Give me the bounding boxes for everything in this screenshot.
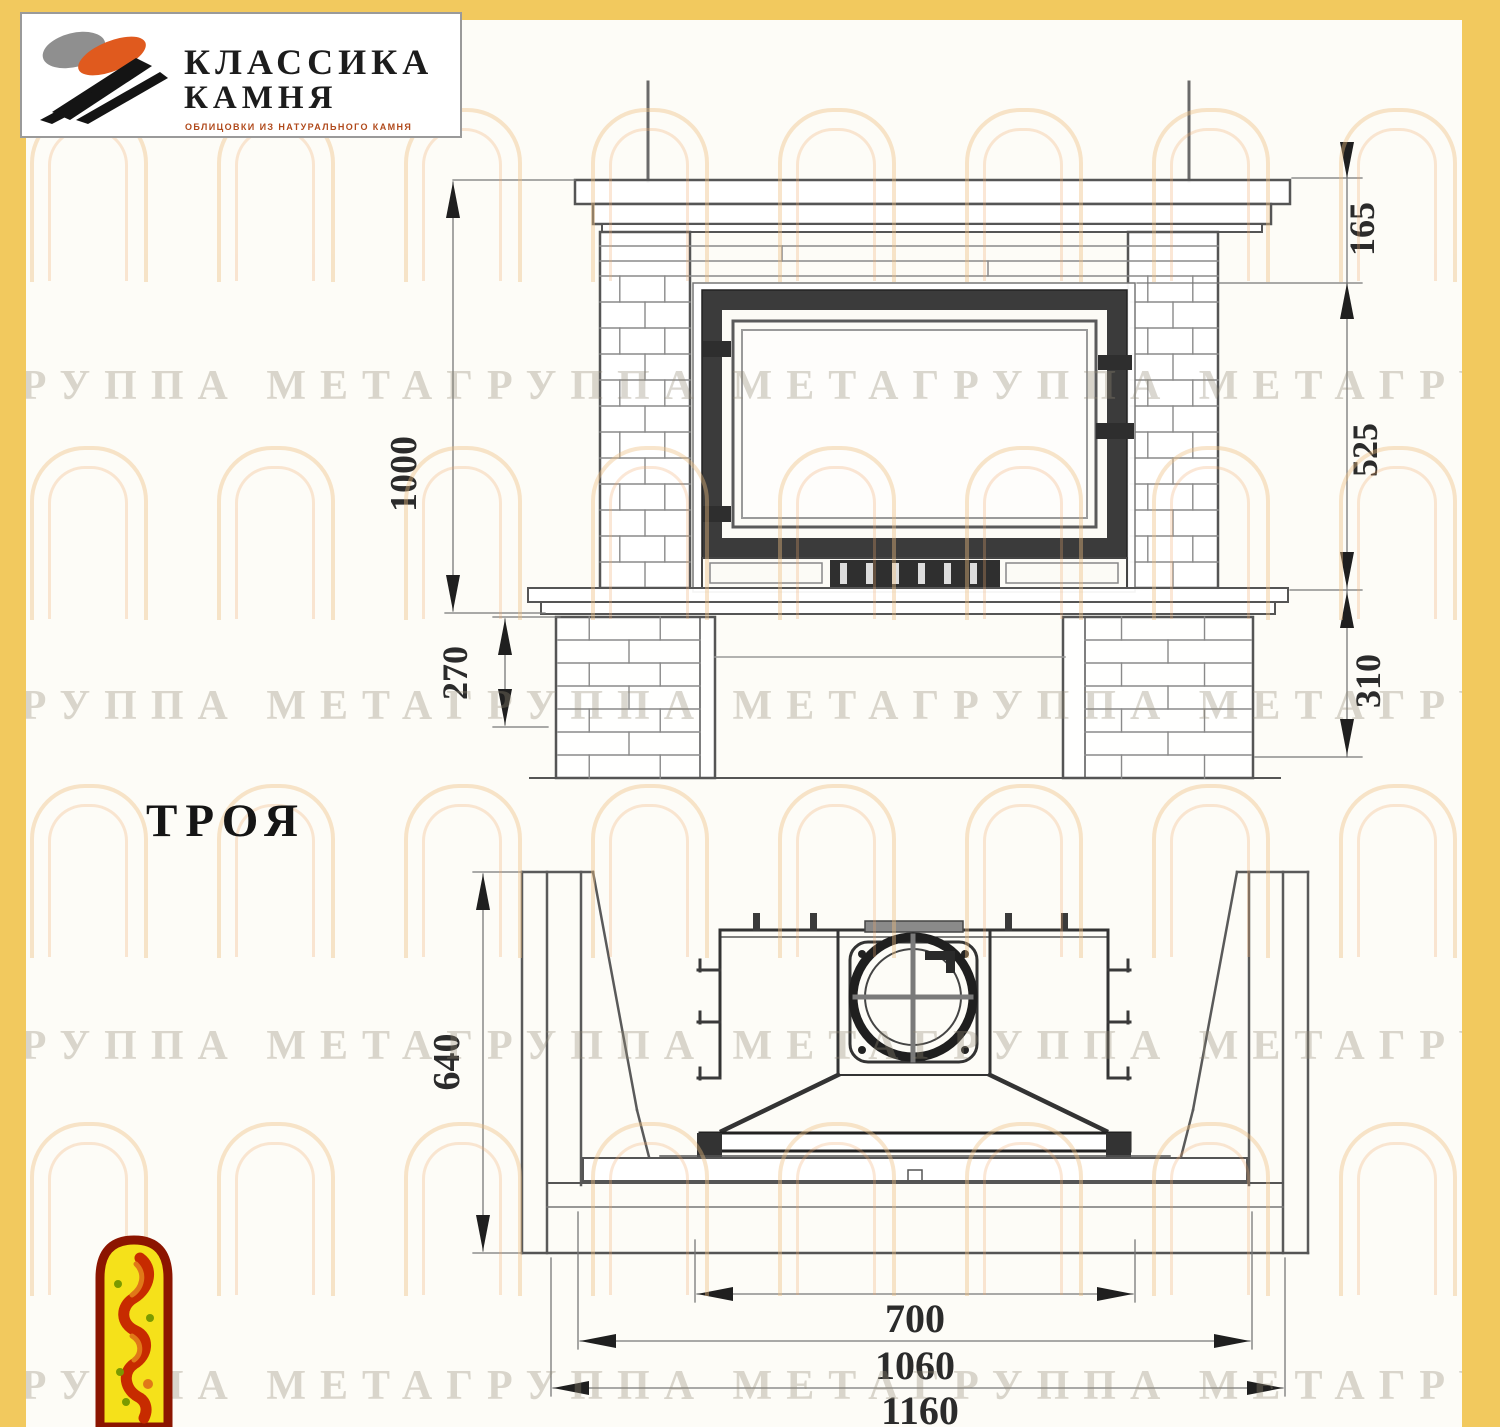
dimension-arrow-icon xyxy=(498,619,512,655)
page-frame-left xyxy=(0,0,26,1427)
dimension-arrow-icon xyxy=(1097,1287,1133,1301)
flue-outlet xyxy=(850,936,977,1062)
brand-name-line2: КАМНЯ xyxy=(184,82,337,115)
dimension-arrow-icon xyxy=(476,1215,490,1251)
dim-mantel-to-opening: 165 xyxy=(1342,202,1382,256)
dimension-arrow-icon xyxy=(1340,719,1354,755)
dimension-arrow-icon xyxy=(1340,283,1354,319)
catalog-page: { "brand": { "name_line1": "КЛАССИКА", "… xyxy=(0,0,1500,1427)
brand-name-line1: КЛАССИКА xyxy=(184,44,433,80)
dimension-arrow-icon xyxy=(498,689,512,725)
hinge-icon xyxy=(703,506,731,522)
front-view xyxy=(445,82,1362,778)
handle-icon xyxy=(1098,355,1132,370)
dimension-arrow-icon xyxy=(446,182,460,218)
dimension-arrow-icon xyxy=(580,1334,616,1348)
dimension-arrow-icon xyxy=(1340,552,1354,588)
dimension-arrow-icon xyxy=(553,1381,589,1395)
dimension-arrow-icon xyxy=(1214,1334,1250,1348)
brand-logo-box: КЛАССИКА КАМНЯ ОБЛИЦОВКИ ИЗ НАТУРАЛЬНОГО… xyxy=(20,12,462,138)
dimension-arrow-icon xyxy=(1247,1381,1283,1395)
firebox-door xyxy=(693,283,1135,592)
dimension-arrow-icon xyxy=(476,874,490,910)
dimension-arrow-icon xyxy=(697,1287,733,1301)
dim-overall-height: 1000 xyxy=(383,436,425,512)
door-glass xyxy=(742,330,1087,518)
meta-emblem-icon xyxy=(92,1232,176,1427)
dim-depth: 640 xyxy=(426,1034,468,1091)
dim-overall-width: 1160 xyxy=(881,1388,959,1427)
dimension-arrow-icon xyxy=(446,575,460,611)
brand-logo-icon xyxy=(36,20,176,130)
fireplace-technical-drawing: 1000 270 165 525 310 640 700 1060 1160 xyxy=(0,0,1500,1427)
dim-opening-height: 525 xyxy=(1345,423,1385,477)
dimension-arrow-icon xyxy=(1340,142,1354,178)
dim-base-height: 310 xyxy=(1348,654,1388,708)
model-title: ТРОЯ xyxy=(146,794,306,848)
handle-icon xyxy=(1096,423,1134,439)
hinge-icon xyxy=(703,341,731,357)
dim-pedestal-height: 270 xyxy=(435,646,475,700)
dim-opening-width: 700 xyxy=(885,1296,945,1341)
page-frame-right xyxy=(1462,0,1500,1427)
lintel-courses xyxy=(600,246,1218,276)
dim-inner-width: 1060 xyxy=(875,1343,955,1388)
brand-tagline: ОБЛИЦОВКИ ИЗ НАТУРАЛЬНОГО КАМНЯ xyxy=(185,122,412,132)
dimension-arrow-icon xyxy=(1340,592,1354,628)
